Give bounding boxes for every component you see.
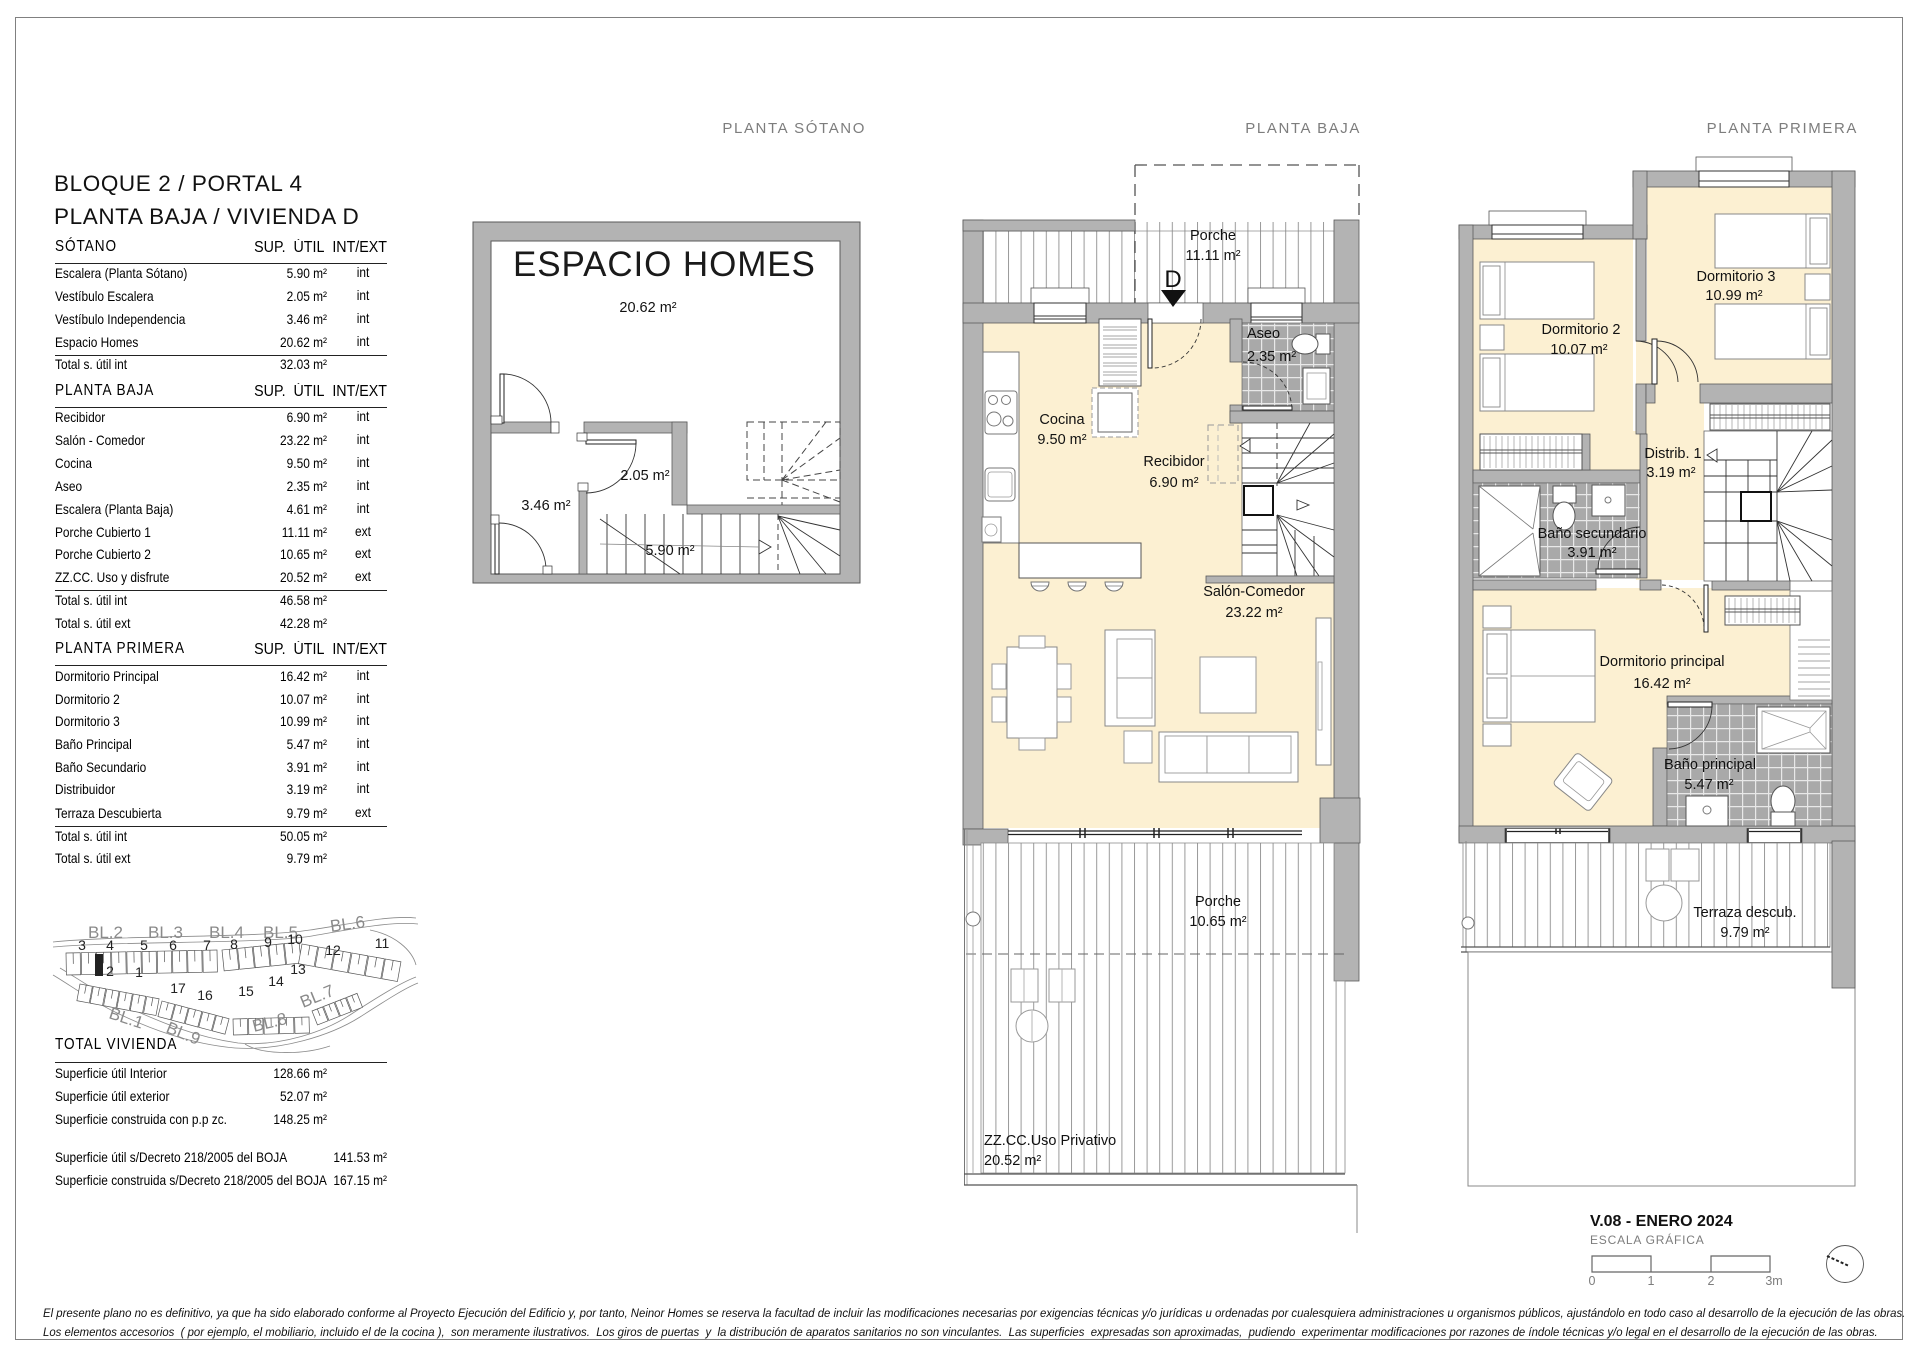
svg-text:3.19 m²: 3.19 m² xyxy=(1646,465,1695,481)
svg-text:Baño secundario: Baño secundario xyxy=(1538,526,1647,542)
svg-text:ESPACIO HOMES: ESPACIO HOMES xyxy=(513,245,816,284)
svg-text:11.11 m²: 11.11 m² xyxy=(1185,248,1240,264)
svg-text:6.90 m²: 6.90 m² xyxy=(1149,475,1198,491)
svg-text:1: 1 xyxy=(135,964,143,980)
svg-text:Terraza descub.: Terraza descub. xyxy=(1693,905,1796,921)
svg-text:5.47 m²: 5.47 m² xyxy=(1684,777,1733,793)
svg-text:D: D xyxy=(1164,266,1181,293)
svg-text:3.91 m²: 3.91 m² xyxy=(1567,545,1616,561)
svg-text:11: 11 xyxy=(375,935,390,951)
svg-text:Porche: Porche xyxy=(1190,228,1236,244)
svg-text:Dormitorio principal: Dormitorio principal xyxy=(1600,654,1725,670)
svg-text:16.42 m²: 16.42 m² xyxy=(1633,676,1690,692)
svg-text:12: 12 xyxy=(325,942,341,958)
svg-text:14: 14 xyxy=(268,973,284,989)
svg-text:5.90 m²: 5.90 m² xyxy=(645,543,694,559)
svg-text:23.22 m²: 23.22 m² xyxy=(1225,605,1282,621)
svg-text:4: 4 xyxy=(106,937,114,953)
svg-text:10.07 m²: 10.07 m² xyxy=(1550,342,1607,358)
svg-text:Salón-Comedor: Salón-Comedor xyxy=(1203,584,1305,600)
svg-text:17: 17 xyxy=(170,980,186,996)
svg-text:Recibidor: Recibidor xyxy=(1143,454,1204,470)
svg-text:3m: 3m xyxy=(1765,1274,1782,1288)
svg-text:10: 10 xyxy=(287,931,303,947)
svg-text:Porche: Porche xyxy=(1195,894,1241,910)
svg-text:Dormitorio 3: Dormitorio 3 xyxy=(1697,269,1776,285)
svg-text:Distrib. 1: Distrib. 1 xyxy=(1644,446,1701,462)
svg-text:9.50 m²: 9.50 m² xyxy=(1037,432,1086,448)
svg-text:ZZ.CC.Uso Privativo: ZZ.CC.Uso Privativo xyxy=(984,1133,1116,1149)
svg-text:2: 2 xyxy=(1708,1274,1715,1288)
svg-text:BL.6: BL.6 xyxy=(329,912,366,936)
svg-text:6: 6 xyxy=(169,937,177,953)
svg-text:7: 7 xyxy=(203,937,211,953)
svg-text:2.05 m²: 2.05 m² xyxy=(620,468,669,484)
svg-text:2.35 m²: 2.35 m² xyxy=(1247,349,1296,365)
svg-text:BL.4: BL.4 xyxy=(209,923,244,942)
svg-text:BL.3: BL.3 xyxy=(148,923,183,942)
svg-text:9.79 m²: 9.79 m² xyxy=(1720,925,1769,941)
svg-text:3.46 m²: 3.46 m² xyxy=(521,498,570,514)
svg-text:8: 8 xyxy=(230,936,238,952)
svg-text:10.65 m²: 10.65 m² xyxy=(1189,914,1246,930)
svg-text:15: 15 xyxy=(238,983,254,999)
svg-text:Cocina: Cocina xyxy=(1039,412,1085,428)
svg-text:Dormitorio 2: Dormitorio 2 xyxy=(1542,322,1621,338)
svg-text:Baño principal: Baño principal xyxy=(1664,757,1756,773)
svg-text:0: 0 xyxy=(1589,1274,1596,1288)
svg-text:Aseo: Aseo xyxy=(1247,326,1280,342)
svg-text:5: 5 xyxy=(140,937,148,953)
svg-text:1: 1 xyxy=(1648,1274,1655,1288)
svg-text:9: 9 xyxy=(264,934,272,950)
svg-text:13: 13 xyxy=(290,961,306,977)
svg-text:3: 3 xyxy=(78,937,86,953)
svg-text:10.99 m²: 10.99 m² xyxy=(1705,288,1762,304)
svg-text:16: 16 xyxy=(197,987,213,1003)
svg-text:20.62 m²: 20.62 m² xyxy=(619,300,676,316)
svg-text:2: 2 xyxy=(106,963,114,979)
svg-text:20.52 m²: 20.52 m² xyxy=(984,1153,1041,1169)
